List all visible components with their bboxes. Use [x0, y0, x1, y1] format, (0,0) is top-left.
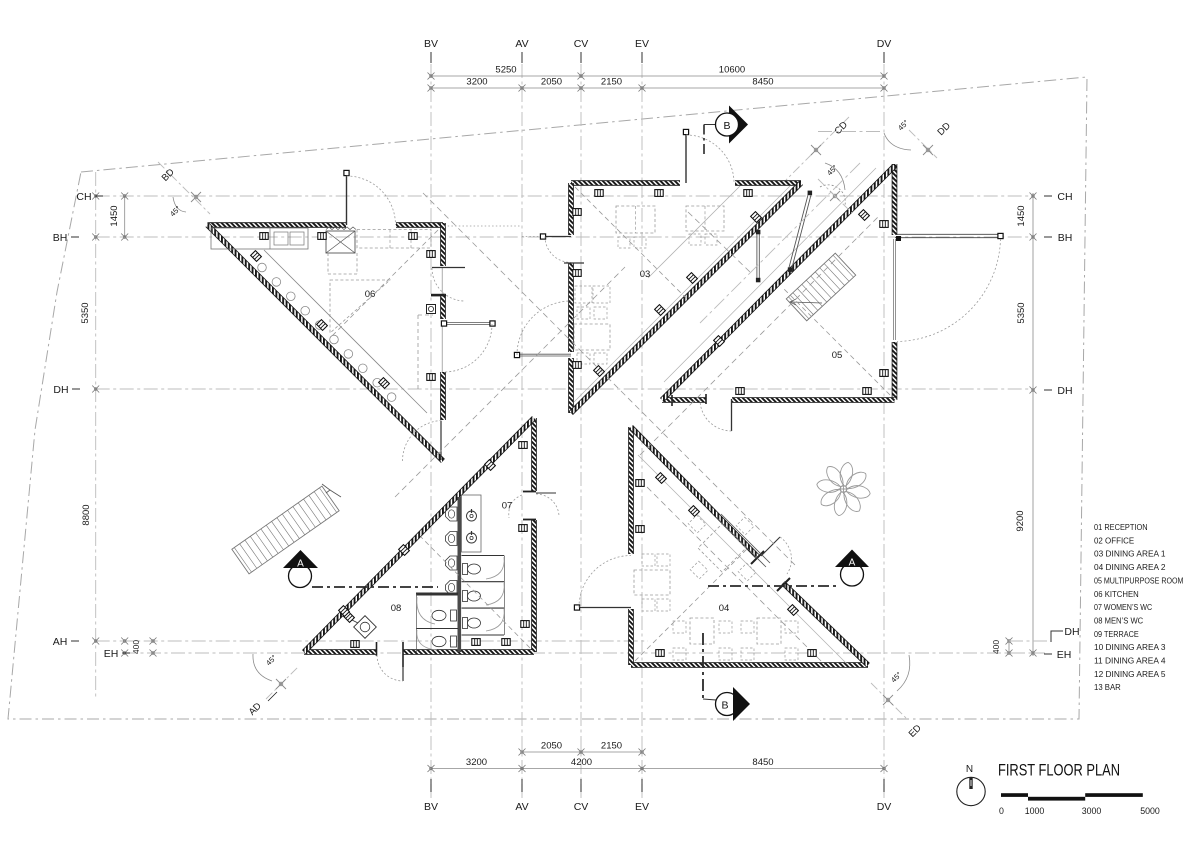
- svg-text:B: B: [723, 120, 730, 132]
- svg-text:5250: 5250: [495, 65, 516, 76]
- svg-text:BV: BV: [424, 801, 438, 813]
- svg-text:CH: CH: [1057, 191, 1072, 203]
- svg-text:BV: BV: [424, 38, 438, 50]
- svg-text:04 DINING AREA 2: 04 DINING AREA 2: [1094, 563, 1166, 572]
- svg-text:AV: AV: [515, 801, 528, 813]
- svg-text:08: 08: [391, 603, 402, 614]
- svg-text:2050: 2050: [541, 77, 562, 88]
- svg-text:BH: BH: [53, 232, 68, 244]
- svg-text:3200: 3200: [466, 77, 487, 88]
- svg-text:DV: DV: [877, 801, 892, 813]
- svg-text:CV: CV: [574, 38, 589, 50]
- svg-text:10600: 10600: [719, 65, 745, 76]
- svg-text:1000: 1000: [1025, 806, 1045, 816]
- svg-text:4200: 4200: [571, 757, 592, 768]
- svg-text:07: 07: [502, 501, 513, 512]
- svg-text:8450: 8450: [752, 77, 773, 88]
- svg-text:8450: 8450: [752, 757, 773, 768]
- svg-text:BH: BH: [1058, 232, 1073, 244]
- svg-text:03: 03: [640, 269, 651, 280]
- svg-text:DV: DV: [877, 38, 892, 50]
- svg-text:11 DINING AREA 4: 11 DINING AREA 4: [1094, 657, 1166, 666]
- svg-text:400: 400: [991, 640, 1001, 654]
- svg-text:CV: CV: [574, 801, 589, 813]
- svg-text:A: A: [297, 559, 304, 570]
- svg-text:08 MEN’S WC: 08 MEN’S WC: [1094, 617, 1143, 626]
- svg-text:FIRST FLOOR PLAN: FIRST FLOOR PLAN: [998, 762, 1120, 780]
- svg-text:13 BAR: 13 BAR: [1094, 683, 1121, 692]
- svg-text:06 KITCHEN: 06 KITCHEN: [1094, 590, 1139, 599]
- svg-text:2150: 2150: [601, 77, 622, 88]
- svg-text:5000: 5000: [1140, 806, 1160, 816]
- svg-text:N: N: [966, 764, 973, 775]
- svg-text:03 DINING AREA 1: 03 DINING AREA 1: [1094, 550, 1166, 559]
- svg-text:EV: EV: [635, 38, 649, 50]
- svg-text:2050: 2050: [541, 741, 562, 752]
- svg-text:EV: EV: [635, 801, 649, 813]
- svg-text:B: B: [721, 699, 728, 711]
- svg-text:0: 0: [999, 806, 1004, 816]
- svg-text:07 WOMEN’S WC: 07 WOMEN’S WC: [1094, 603, 1152, 612]
- svg-text:3200: 3200: [466, 757, 487, 768]
- svg-text:400: 400: [131, 640, 141, 654]
- svg-text:AV: AV: [515, 38, 528, 50]
- svg-text:DH: DH: [53, 384, 68, 396]
- svg-text:1450: 1450: [1016, 205, 1027, 226]
- svg-text:A: A: [849, 558, 856, 569]
- svg-text:12 DINING AREA 5: 12 DINING AREA 5: [1094, 670, 1166, 679]
- svg-text:DH: DH: [1064, 626, 1079, 638]
- svg-text:CH: CH: [76, 191, 91, 203]
- svg-text:05: 05: [832, 350, 843, 361]
- svg-text:04: 04: [719, 603, 730, 614]
- svg-text:3000: 3000: [1082, 806, 1102, 816]
- svg-text:01 RECEPTION: 01 RECEPTION: [1094, 523, 1148, 532]
- svg-text:DH: DH: [1057, 385, 1072, 397]
- svg-text:1450: 1450: [109, 205, 120, 226]
- svg-text:05 MULTIPURPOSE ROOM: 05 MULTIPURPOSE ROOM: [1094, 576, 1184, 585]
- svg-text:02 OFFICE: 02 OFFICE: [1094, 536, 1134, 545]
- svg-text:8800: 8800: [81, 504, 92, 525]
- svg-text:EH: EH: [104, 648, 119, 660]
- svg-text:5350: 5350: [80, 302, 91, 323]
- svg-text:09 TERRACE: 09 TERRACE: [1094, 630, 1139, 639]
- svg-text:5350: 5350: [1016, 302, 1027, 323]
- svg-text:9200: 9200: [1015, 510, 1026, 531]
- svg-text:2150: 2150: [601, 741, 622, 752]
- svg-text:AH: AH: [53, 636, 68, 648]
- svg-text:EH: EH: [1057, 649, 1072, 661]
- svg-text:10 DINING AREA 3: 10 DINING AREA 3: [1094, 643, 1166, 652]
